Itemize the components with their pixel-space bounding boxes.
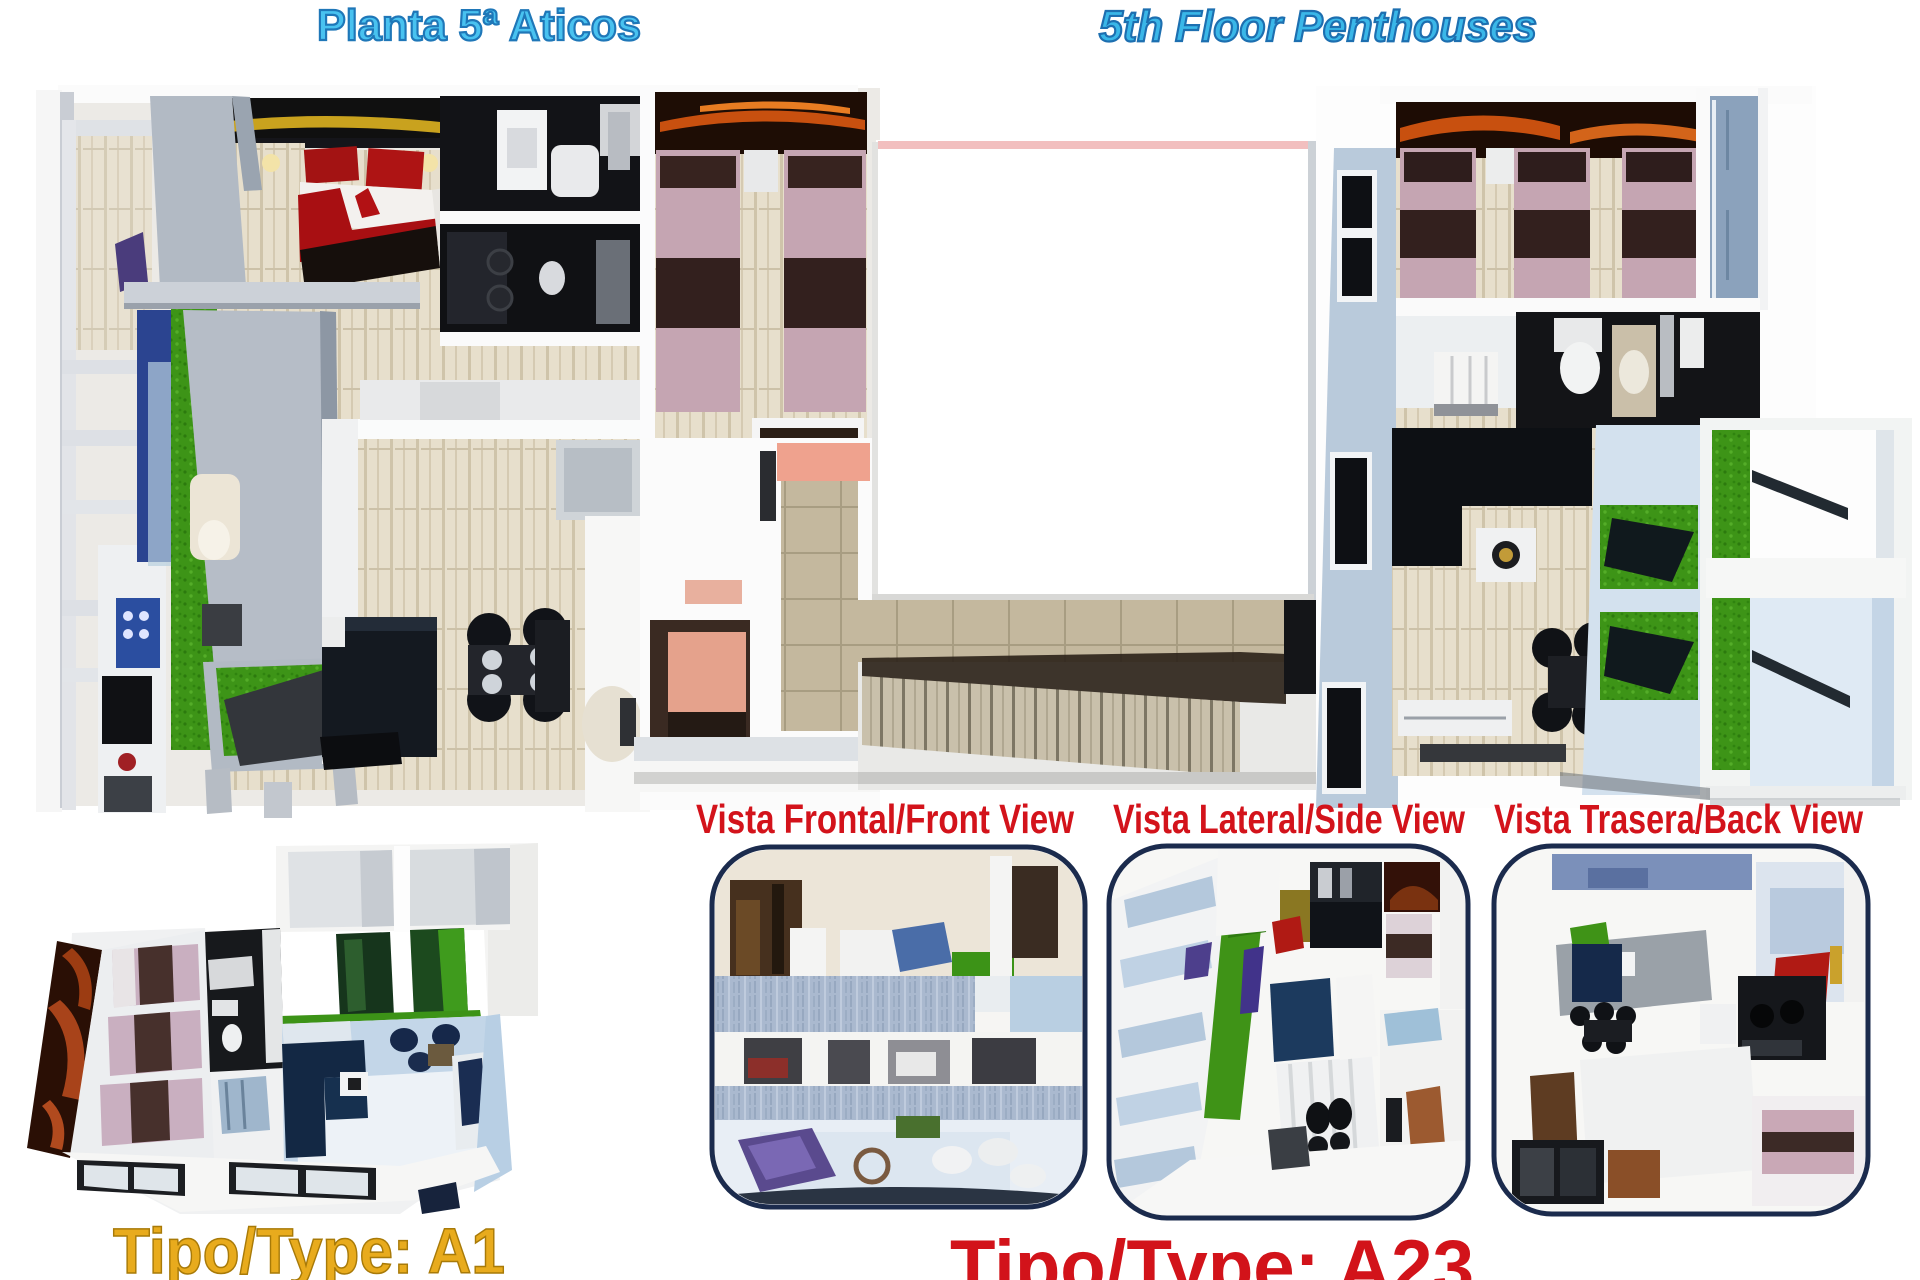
svg-text:Vista Lateral/Side View: Vista Lateral/Side View	[1113, 796, 1465, 842]
svg-text:Planta 5ª Aticos: Planta 5ª Aticos	[317, 1, 641, 50]
svg-text:Tipo/Type: A23: Tipo/Type: A23	[950, 1225, 1474, 1280]
svg-text:Vista Trasera/Back View: Vista Trasera/Back View	[1494, 796, 1863, 842]
svg-text:Vista Frontal/Front View: Vista Frontal/Front View	[696, 796, 1074, 842]
svg-text:5th Floor Penthouses: 5th Floor Penthouses	[1099, 2, 1537, 51]
svg-text:Tipo/Type: A1: Tipo/Type: A1	[113, 1215, 505, 1280]
